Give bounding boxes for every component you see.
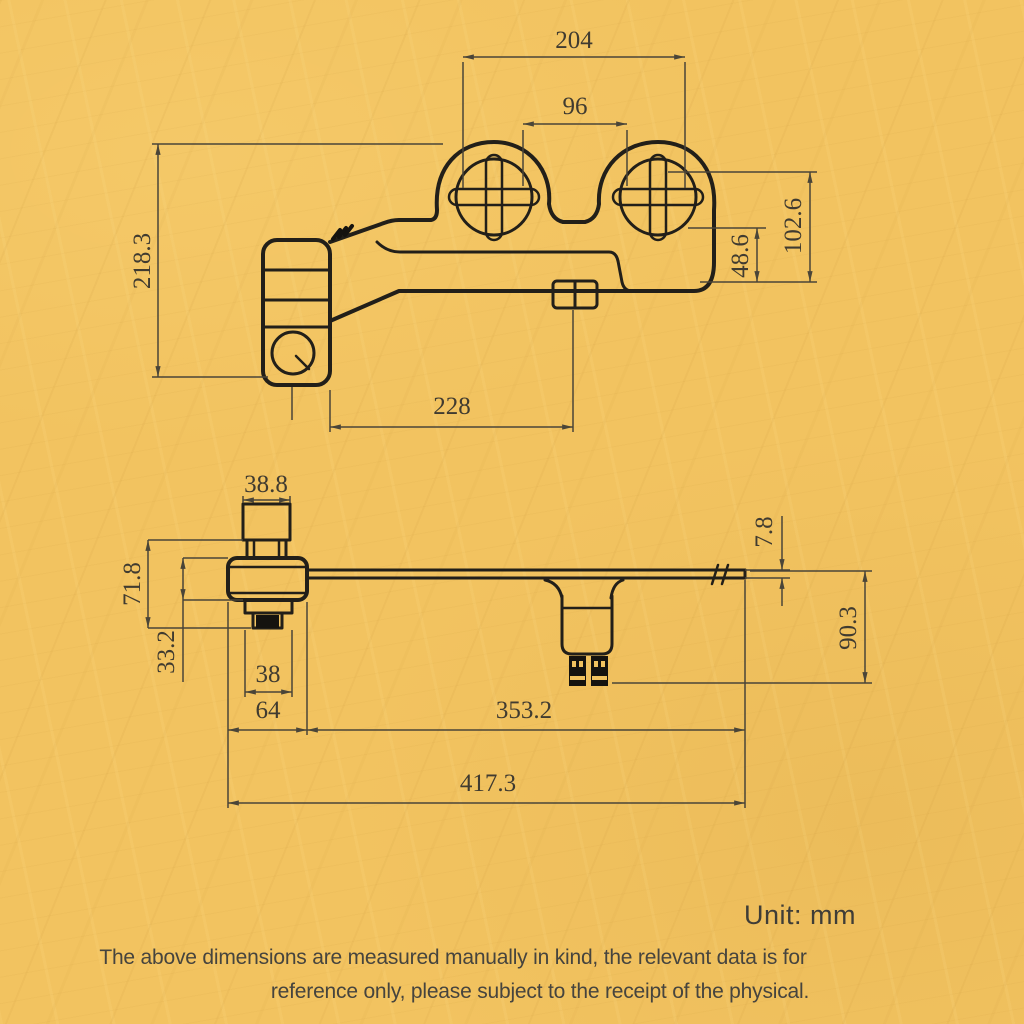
dim-48-6-label: 48.6 xyxy=(727,234,754,278)
disclaimer-line-1: The above dimensions are measured manual… xyxy=(99,946,807,969)
dim-228-label: 228 xyxy=(433,393,471,420)
side-view-drawing: 38.8 71.8 33.2 38 xyxy=(119,471,872,808)
dim-38: 38 xyxy=(245,630,292,697)
dim-38-8-label: 38.8 xyxy=(244,471,288,498)
dim-218-3: 218.3 xyxy=(129,144,443,377)
dim-102-6-label: 102.6 xyxy=(780,198,807,254)
dim-71-8: 71.8 xyxy=(119,540,251,628)
dim-417-3-label: 417.3 xyxy=(460,770,516,797)
unit-label: Unit: mm xyxy=(744,900,856,930)
body-inner-line xyxy=(377,242,632,291)
dim-33-2-label: 33.2 xyxy=(153,630,180,674)
control-head xyxy=(263,240,330,385)
dim-64: 64 xyxy=(228,697,307,730)
dim-38-label: 38 xyxy=(256,661,281,688)
dim-90-3-label: 90.3 xyxy=(835,606,862,650)
dim-204-label: 204 xyxy=(555,27,593,54)
dim-48-6: 48.6 xyxy=(688,228,766,282)
nozzle-housing xyxy=(545,580,623,686)
dim-218-3-label: 218.3 xyxy=(129,233,156,289)
dial-pointer xyxy=(296,356,309,369)
dim-353-2-label: 353.2 xyxy=(496,697,552,724)
dim-38-8: 38.8 xyxy=(243,471,290,503)
disclaimer-line-2: reference only, please subject to the re… xyxy=(271,980,809,1003)
dim-90-3: 90.3 xyxy=(612,571,872,683)
valve-assembly xyxy=(228,504,307,628)
dim-228: 228 xyxy=(292,310,573,432)
top-view-drawing: 204 96 218.3 228 48.6 xyxy=(129,27,817,432)
nozzle-tips xyxy=(569,656,608,686)
nozzle-boss xyxy=(553,281,597,308)
body-outline xyxy=(330,142,714,321)
footer-text: Unit: mm The above dimensions are measur… xyxy=(99,900,856,1003)
gasket xyxy=(256,615,279,628)
dim-96-label: 96 xyxy=(563,93,588,120)
dim-96: 96 xyxy=(523,93,627,186)
dim-71-8-label: 71.8 xyxy=(119,562,146,606)
technical-drawing: 204 96 218.3 228 48.6 xyxy=(0,0,1024,1024)
mounting-plate xyxy=(307,565,745,584)
dim-417-3: 417.3 xyxy=(228,770,745,803)
dim-64-label: 64 xyxy=(256,697,282,724)
dim-7-8-label: 7.8 xyxy=(751,516,778,547)
drawing-sheet: 204 96 218.3 228 48.6 xyxy=(0,0,1024,1024)
dim-7-8: 7.8 xyxy=(745,516,790,606)
dim-353-2: 353.2 xyxy=(307,697,745,730)
